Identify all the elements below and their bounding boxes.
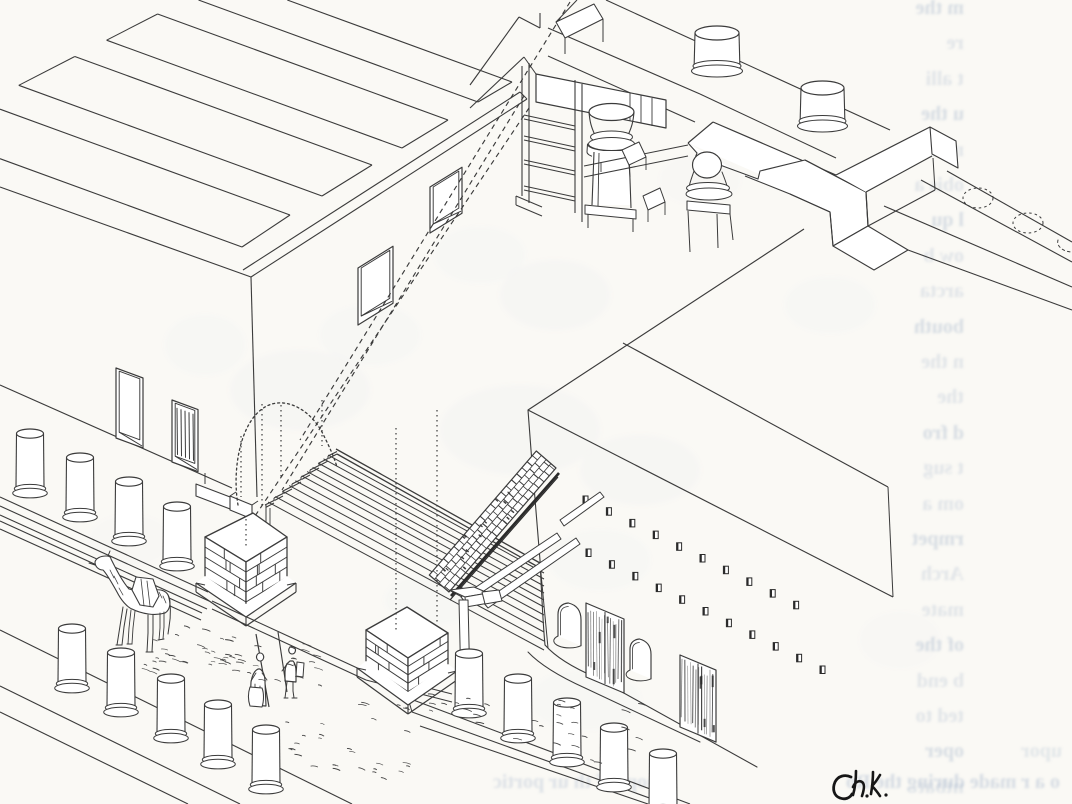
svg-text:t alli: t alli (925, 68, 964, 90)
svg-text:upor: upor (1021, 740, 1062, 762)
svg-text:ted to: ted to (916, 705, 964, 727)
svg-text:oper: oper (925, 740, 964, 762)
svg-text:re: re (946, 32, 964, 54)
svg-text:the: the (937, 386, 964, 408)
svg-text:of the: of the (916, 634, 964, 656)
svg-text:d fro: d fro (923, 422, 964, 444)
svg-text:rmpet: rmpet (911, 528, 964, 550)
svg-text:n the: n the (921, 351, 964, 373)
svg-text:mate: mate (922, 599, 964, 621)
svg-text:arcta: arcta (920, 280, 964, 302)
svg-text:om a: om a (922, 493, 964, 515)
svg-text:t sug: t sug (923, 457, 964, 479)
svg-text:m the: m the (916, 0, 964, 19)
svg-text:bouth: bouth (914, 316, 964, 338)
svg-text:b end: b end (917, 670, 964, 692)
svg-text:Arch: Arch (921, 563, 964, 585)
svg-text:l qu: l qu (931, 209, 964, 231)
svg-text:u the: u the (921, 103, 964, 125)
svg-text:shops of th ur portic: shops of th ur portic (493, 771, 666, 793)
svg-text:o a r made during the Ro: o a r made during the Ro (846, 771, 1060, 793)
svg-text:ow b: ow b (923, 245, 964, 267)
svg-text:obis a: obis a (915, 174, 964, 196)
